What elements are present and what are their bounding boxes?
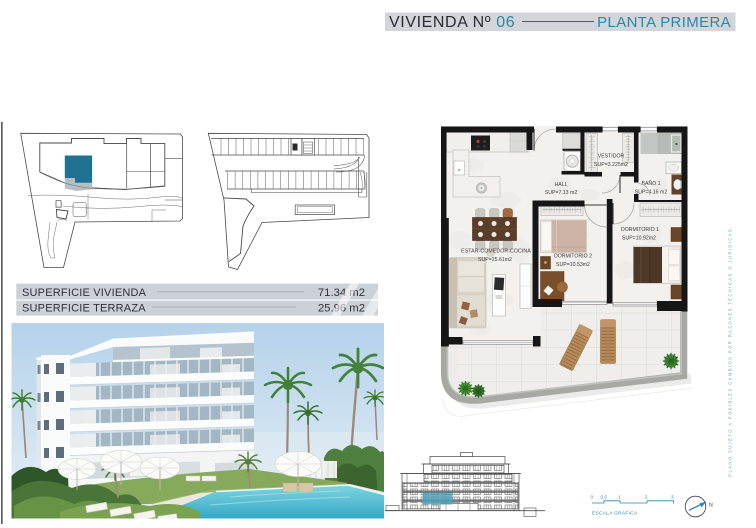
svg-text:DORMITORIO 2: DORMITORIO 2	[554, 254, 592, 260]
svg-text:SUPERFICIE TERRAZA: SUPERFICIE TERRAZA	[22, 302, 146, 314]
svg-text:VIVIENDA Nº 06: VIVIENDA Nº 06	[389, 14, 515, 31]
svg-text:0: 0	[591, 495, 594, 500]
svg-text:71.34 m2: 71.34 m2	[318, 287, 365, 299]
svg-text:VESTIDOR: VESTIDOR	[598, 154, 625, 160]
svg-text:SUP=10.53m2: SUP=10.53m2	[556, 262, 590, 268]
svg-text:N: N	[709, 503, 713, 509]
svg-text:PLANO SUJETO A POSIBLES CAMBIO: PLANO SUJETO A POSIBLES CAMBIOS POR RAZO…	[728, 225, 733, 476]
svg-text:ESTAR-COMEDOR-COCINA: ESTAR-COMEDOR-COCINA	[461, 249, 531, 255]
svg-text:HALL: HALL	[555, 182, 568, 188]
svg-text:SUPERFICIE VIVIENDA: SUPERFICIE VIVIENDA	[22, 287, 147, 299]
svg-text:BAÑO 1: BAÑO 1	[641, 180, 660, 187]
svg-text:SUP=4.16 m2: SUP=4.16 m2	[635, 190, 668, 196]
svg-text:ESCALA GRÁFICA: ESCALA GRÁFICA	[592, 510, 638, 517]
svg-text:0.5: 0.5	[601, 495, 608, 500]
svg-text:SUP=25.61m2: SUP=25.61m2	[478, 257, 512, 263]
svg-text:DORMITORIO 1: DORMITORIO 1	[621, 227, 659, 233]
svg-text:PLANTA PRIMERA: PLANTA PRIMERA	[597, 14, 731, 31]
svg-text:2: 2	[645, 495, 648, 500]
svg-text:3: 3	[671, 495, 674, 500]
svg-text:SUP=7.13 m2: SUP=7.13 m2	[545, 190, 578, 196]
svg-text:SUP=3.225m2: SUP=3.225m2	[594, 162, 628, 168]
svg-text:1: 1	[618, 495, 621, 500]
svg-text:SUP=10.92m2: SUP=10.92m2	[622, 236, 656, 242]
